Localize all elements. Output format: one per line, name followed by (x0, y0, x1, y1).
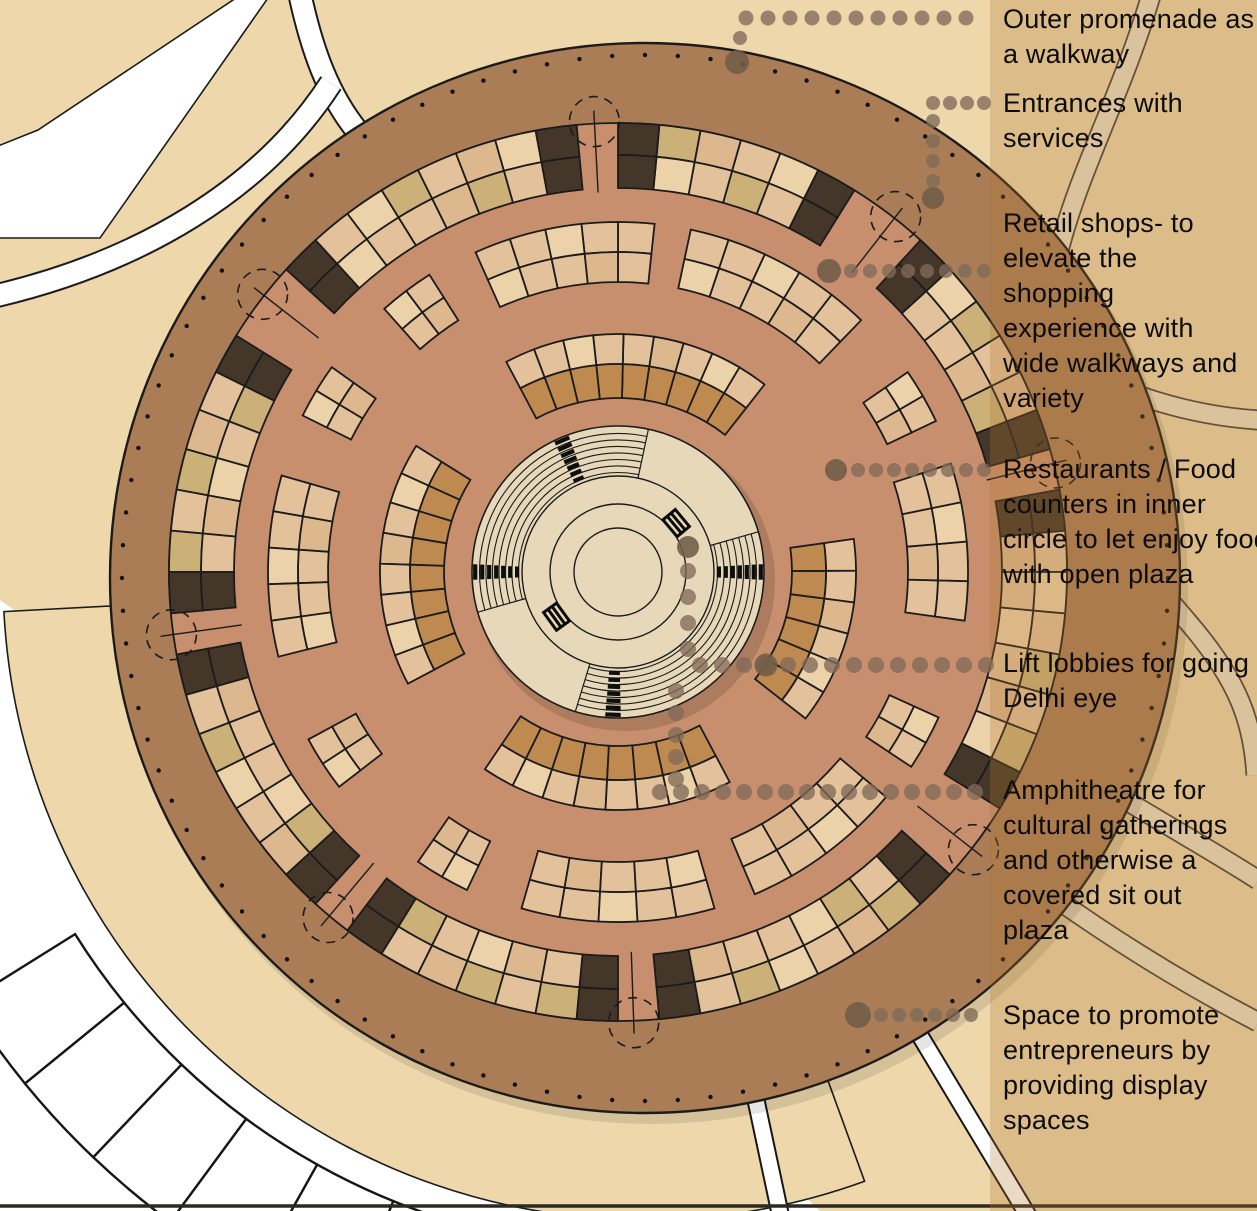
circular-plaza-plan (0, 0, 1257, 1211)
site-plan-canvas: Outer promenade as a walkway Entrances w… (0, 0, 1257, 1211)
overlay-panel (990, 0, 1257, 1211)
